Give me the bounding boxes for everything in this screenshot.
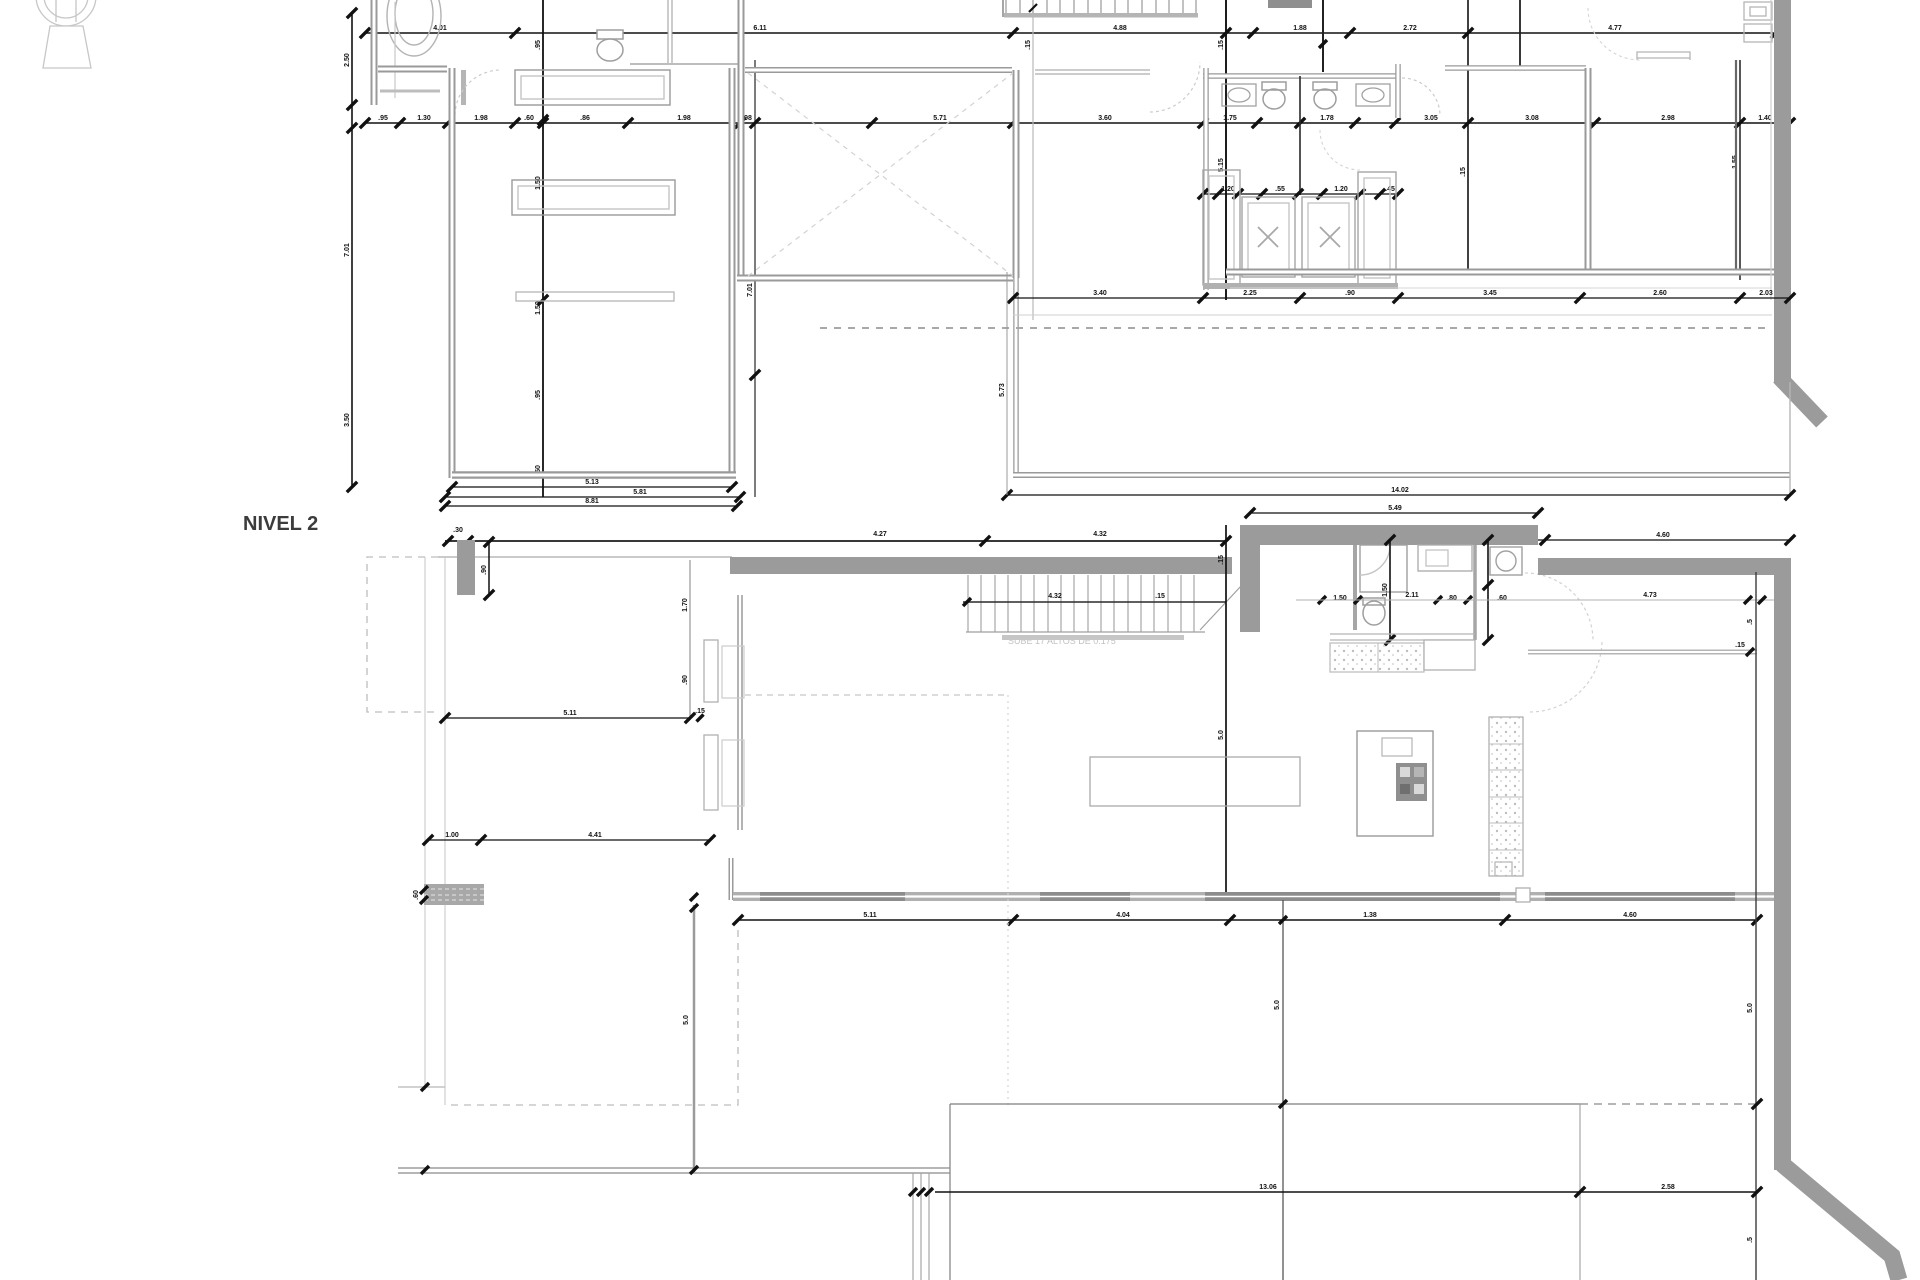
svg-text:3.40: 3.40 [1093, 290, 1107, 297]
svg-text:.15: .15 [1460, 167, 1467, 177]
svg-text:NIVEL 2: NIVEL 2 [243, 513, 318, 535]
svg-text:.60: .60 [1497, 595, 1507, 602]
svg-text:4.27: 4.27 [873, 531, 887, 538]
svg-text:4.04: 4.04 [1116, 912, 1130, 919]
svg-text:4.41: 4.41 [588, 832, 602, 839]
svg-text:5.71: 5.71 [933, 115, 947, 122]
svg-text:2.72: 2.72 [1403, 25, 1417, 32]
svg-text:.90: .90 [682, 675, 689, 685]
svg-text:.90: .90 [1345, 290, 1355, 297]
svg-text:1.50: 1.50 [535, 176, 542, 190]
svg-text:5.11: 5.11 [563, 710, 576, 717]
svg-text:7.01: 7.01 [747, 283, 754, 297]
svg-text:1.98: 1.98 [677, 115, 691, 122]
svg-text:1.50: 1.50 [535, 301, 542, 315]
svg-text:1.40: 1.40 [1758, 115, 1772, 122]
svg-text:1.78: 1.78 [1320, 115, 1334, 122]
svg-text:4.60: 4.60 [1623, 912, 1637, 919]
svg-text:.15: .15 [1155, 593, 1165, 600]
svg-text:2.03: 2.03 [1759, 290, 1773, 297]
svg-text:1.88: 1.88 [1293, 25, 1307, 32]
svg-text:.60: .60 [413, 890, 420, 900]
svg-text:1.50: 1.50 [1382, 583, 1389, 597]
svg-text:1.38: 1.38 [1363, 912, 1377, 919]
svg-text:5.73: 5.73 [999, 383, 1006, 397]
svg-text:2.58: 2.58 [1661, 1184, 1675, 1191]
svg-text:4.88: 4.88 [1113, 25, 1127, 32]
svg-text:.55: .55 [1275, 186, 1285, 193]
svg-text:5.49: 5.49 [1388, 505, 1402, 512]
svg-text:.15: .15 [695, 708, 705, 715]
svg-text:.60: .60 [524, 115, 534, 122]
svg-text:4.32: 4.32 [1093, 531, 1107, 538]
svg-text:1.30: 1.30 [417, 115, 431, 122]
svg-text:1.20: 1.20 [1334, 186, 1348, 193]
svg-text:2.50: 2.50 [344, 53, 351, 67]
svg-text:.95: .95 [535, 40, 542, 50]
svg-text:4.77: 4.77 [1608, 25, 1622, 32]
svg-text:2.11: 2.11 [1405, 592, 1418, 599]
svg-text:3.50: 3.50 [344, 413, 351, 427]
svg-text:.95: .95 [378, 115, 388, 122]
svg-text:5.0: 5.0 [1274, 1000, 1281, 1010]
svg-text:.15: .15 [1025, 40, 1032, 50]
svg-text:.15: .15 [1735, 642, 1745, 649]
svg-text:.86: .86 [580, 115, 590, 122]
svg-text:3.05: 3.05 [1424, 115, 1438, 122]
svg-text:5.13: 5.13 [585, 479, 599, 486]
svg-text:1.50: 1.50 [1333, 595, 1347, 602]
svg-text:5.11: 5.11 [863, 912, 876, 919]
svg-text:.5: .5 [1747, 619, 1754, 625]
svg-text:.90: .90 [481, 565, 488, 575]
svg-text:1.20: 1.20 [1221, 186, 1235, 193]
svg-text:2.60: 2.60 [1653, 290, 1667, 297]
svg-text:14.02: 14.02 [1391, 487, 1409, 494]
svg-text:7.01: 7.01 [344, 243, 351, 257]
svg-text:2.25: 2.25 [1243, 290, 1257, 297]
svg-text:1.98: 1.98 [474, 115, 488, 122]
svg-text:5.0: 5.0 [1218, 730, 1225, 740]
svg-text:1.00: 1.00 [445, 832, 459, 839]
svg-text:.30: .30 [453, 527, 463, 534]
svg-text:5.81: 5.81 [633, 489, 647, 496]
svg-text:3.60: 3.60 [1098, 115, 1112, 122]
svg-text:.5: .5 [1747, 1237, 1754, 1243]
svg-text:8.81: 8.81 [585, 498, 599, 505]
svg-text:13.06: 13.06 [1259, 1184, 1277, 1191]
svg-text:5.0: 5.0 [1747, 1003, 1754, 1013]
svg-text:5.0: 5.0 [683, 1015, 690, 1025]
svg-text:6.11: 6.11 [753, 25, 766, 32]
svg-text:4.32: 4.32 [1048, 593, 1062, 600]
svg-text:4.73: 4.73 [1643, 592, 1657, 599]
svg-text:2.98: 2.98 [1661, 115, 1675, 122]
svg-text:.15: .15 [1218, 40, 1225, 50]
svg-text:.15: .15 [1218, 555, 1225, 565]
svg-text:.80: .80 [1447, 595, 1457, 602]
svg-text:3.08: 3.08 [1525, 115, 1539, 122]
svg-text:4.60: 4.60 [1656, 532, 1670, 539]
svg-text:1.70: 1.70 [682, 598, 689, 612]
svg-text:3.45: 3.45 [1483, 290, 1497, 297]
svg-text:.95: .95 [535, 390, 542, 400]
